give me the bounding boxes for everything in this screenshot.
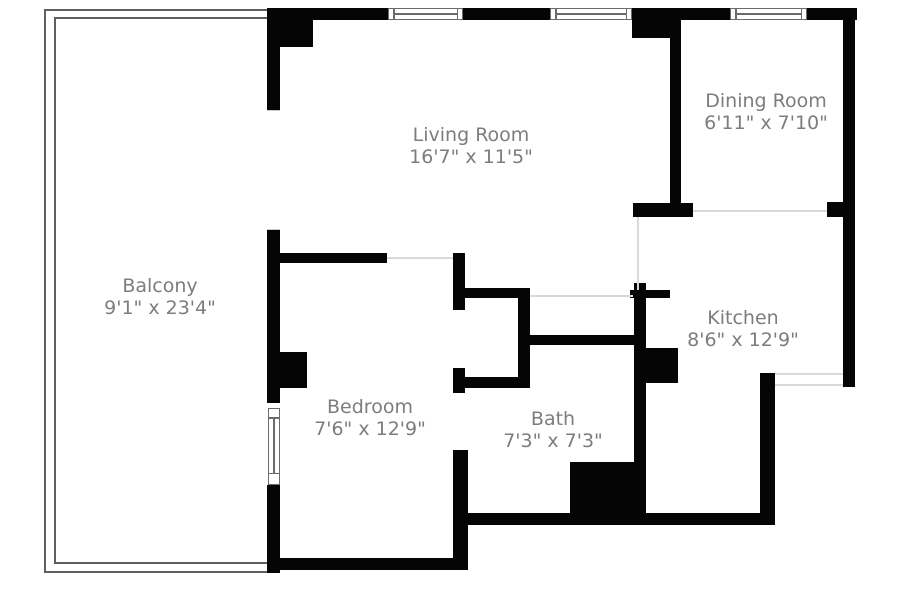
wall-balcony-upper bbox=[267, 8, 280, 111]
room-name: Dining Room bbox=[704, 90, 828, 112]
balcony-door-tick-top bbox=[267, 110, 280, 111]
balcony-door-tick-bottom bbox=[267, 229, 280, 230]
wall-pocket-right bbox=[760, 373, 775, 525]
wall-bedroom-pillar bbox=[280, 352, 307, 388]
wall-kitchen-left bbox=[634, 283, 646, 525]
room-name: Balcony bbox=[104, 275, 216, 297]
room-label-kitchen: Kitchen 8'6" x 12'9" bbox=[687, 307, 799, 351]
wall-kitchen-block bbox=[638, 348, 678, 383]
wall-right bbox=[843, 8, 855, 387]
room-name: Bath bbox=[503, 408, 603, 430]
room-label-bedroom: Bedroom 7'6" x 12'9" bbox=[314, 396, 426, 440]
wall-living-bedroom bbox=[280, 253, 387, 263]
wall-top-b bbox=[463, 8, 550, 20]
opening-living-kitchen-line bbox=[637, 217, 639, 290]
wall-balcony-mid bbox=[267, 230, 280, 403]
room-dimensions: 6'11" x 7'10" bbox=[704, 112, 828, 134]
wall-bedroom-right-bottom bbox=[453, 450, 468, 570]
room-name: Kitchen bbox=[687, 307, 799, 329]
room-label-living-room: Living Room 16'7" x 11'5" bbox=[409, 124, 533, 168]
window-pane-line bbox=[394, 13, 457, 15]
window-pane-line bbox=[736, 13, 801, 15]
wall-bath-block bbox=[570, 462, 640, 525]
room-label-balcony: Balcony 9'1" x 23'4" bbox=[104, 275, 216, 319]
wall-bedroom-bottom bbox=[267, 558, 467, 570]
wall-living-dining bbox=[670, 8, 681, 205]
window-pane-line bbox=[273, 418, 275, 473]
window-pane-line bbox=[556, 13, 626, 15]
room-name: Bedroom bbox=[314, 396, 426, 418]
room-label-dining-room: Dining Room 6'11" x 7'10" bbox=[704, 90, 828, 134]
room-dimensions: 7'6" x 12'9" bbox=[314, 418, 426, 440]
wall-bedroom-right-top bbox=[453, 253, 465, 310]
wall-dining-kitchen-stub bbox=[827, 202, 843, 217]
opening-living-nook-line bbox=[530, 295, 633, 297]
wall-living-dining-foot bbox=[633, 203, 693, 217]
floor-plan: Living Room 16'7" x 11'5" Dining Room 6'… bbox=[0, 0, 900, 600]
room-dimensions: 7'3" x 7'3" bbox=[503, 430, 603, 452]
window-icon bbox=[268, 408, 280, 485]
room-dimensions: 16'7" x 11'5" bbox=[409, 146, 533, 168]
room-dimensions: 9'1" x 23'4" bbox=[104, 297, 216, 319]
opening-dining-kitchen-line bbox=[693, 210, 827, 212]
room-label-bath: Bath 7'3" x 7'3" bbox=[503, 408, 603, 452]
wall-corner-block-dining bbox=[632, 8, 673, 38]
window-icon bbox=[388, 8, 463, 20]
window-icon bbox=[550, 8, 632, 20]
opening-kitchen-bottom-line-a bbox=[775, 373, 843, 375]
opening-living-bedroom-line bbox=[387, 257, 453, 259]
window-icon bbox=[730, 8, 807, 20]
room-dimensions: 8'6" x 12'9" bbox=[687, 329, 799, 351]
wall-bath-top bbox=[528, 335, 638, 345]
opening-kitchen-bottom-line-b bbox=[775, 384, 843, 386]
room-name: Living Room bbox=[409, 124, 533, 146]
